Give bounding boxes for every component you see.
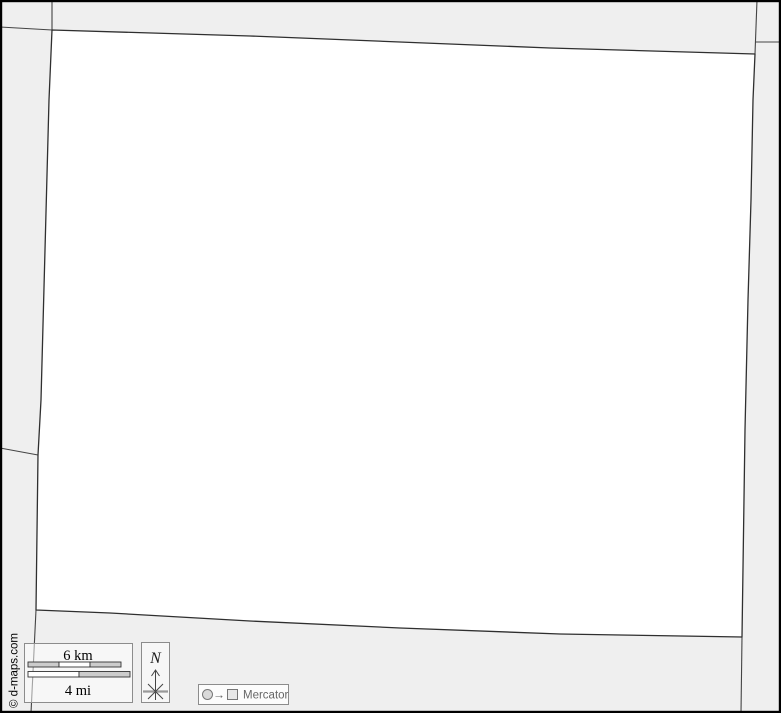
- square-icon: [228, 690, 238, 700]
- scale-bar-km: [28, 662, 121, 667]
- projection-label: Mercator: [243, 690, 289, 702]
- compass: N: [142, 643, 170, 703]
- scale-mi-label: 4 mi: [65, 683, 91, 699]
- scale-segment: [90, 662, 121, 667]
- copyright-label: © d-maps.com: [9, 633, 21, 708]
- territory-outline: [36, 30, 755, 637]
- circle-icon: [203, 690, 213, 700]
- scale-segment: [28, 672, 79, 678]
- projection-legend: → Mercator: [199, 685, 289, 705]
- scale-bar-mi: [28, 672, 130, 678]
- scale-segment: [28, 662, 59, 667]
- compass-north-label: N: [149, 650, 162, 667]
- map-canvas: 6 km 4 mi N: [0, 0, 781, 713]
- scale-segment: [59, 662, 90, 667]
- scale-bar: 6 km 4 mi: [25, 644, 133, 703]
- map-svg: 6 km 4 mi N: [0, 0, 781, 713]
- scale-segment: [79, 672, 130, 678]
- transform-arrow-icon: →: [213, 688, 225, 702]
